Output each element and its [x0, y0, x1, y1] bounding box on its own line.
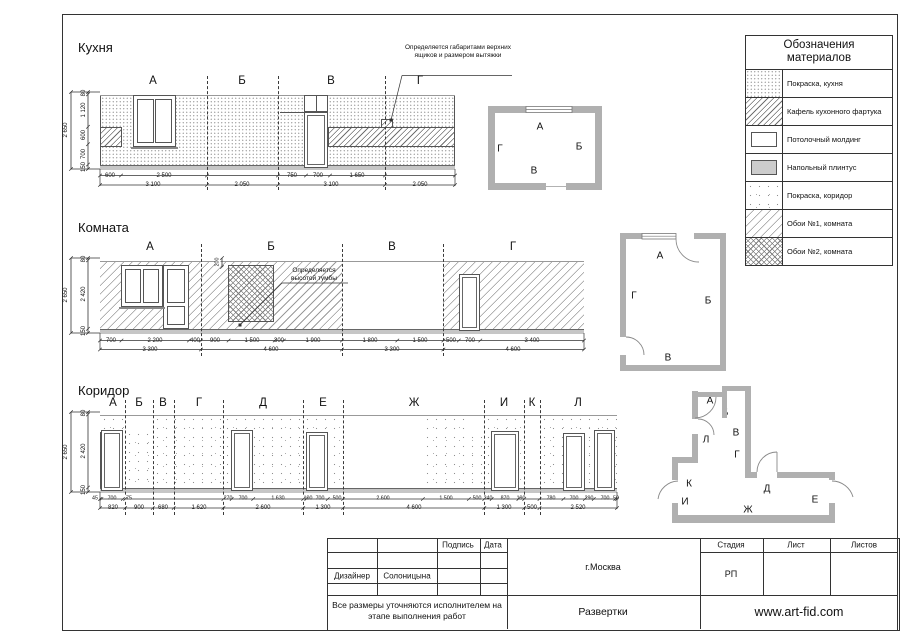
room-door	[459, 274, 480, 331]
legend-row: Покраска, кухня	[746, 69, 892, 97]
kitchen-transom	[304, 95, 328, 112]
section-divider	[342, 244, 343, 356]
titleblock-note: Все размеры уточняются исполнителем на э…	[329, 600, 505, 622]
dim-label: 2 420	[81, 443, 87, 458]
section-divider	[153, 400, 154, 515]
plan-wall-label: А	[537, 122, 544, 133]
room-window-sill	[119, 307, 165, 309]
designer-label: Дизайнер	[334, 572, 370, 581]
dim-label: 1 800	[361, 338, 378, 344]
dim-total-label: 2 650	[63, 444, 69, 459]
dim-label: 4 600	[504, 347, 521, 353]
legend-label: Потолочный молдинг	[783, 126, 865, 153]
dim-label: 700	[105, 338, 117, 344]
section-divider	[443, 244, 444, 356]
section-divider	[278, 76, 279, 190]
legend-label: Напольный плинтус	[783, 154, 860, 181]
dim-label: 780	[546, 496, 557, 501]
legend-label: Покраска, коридор	[783, 182, 856, 209]
plan-wall-label: Г	[497, 144, 502, 155]
dim-label: 150	[81, 326, 87, 336]
dim-label: 500	[472, 496, 483, 501]
kitchen-window-sill	[131, 147, 178, 149]
dim-label: 80	[81, 256, 87, 263]
section-label: Б	[135, 397, 143, 409]
signature-header: Подпись	[442, 541, 474, 550]
legend-label: Кафель кухонного фартука	[783, 98, 885, 125]
dim-label: 500	[526, 505, 538, 511]
sheets-header: Листов	[851, 541, 877, 550]
dim-label: 600	[104, 173, 116, 179]
dim-label: 400	[189, 338, 201, 344]
dim-label: 50	[612, 496, 620, 501]
section-label: Л	[574, 397, 582, 409]
titleblock-line	[327, 595, 898, 596]
dim-label: 700	[569, 496, 580, 501]
legend-row: Кафель кухонного фартука	[746, 97, 892, 125]
balcony-door-glass	[167, 269, 185, 303]
section-label: Б	[238, 75, 246, 87]
stage-value: РП	[725, 569, 737, 579]
titleblock-line	[327, 568, 507, 569]
kitchen-counter-line	[280, 112, 304, 113]
legend-swatch-molding	[746, 126, 783, 153]
section-label: Г	[510, 241, 516, 253]
dim-total-label: 2 650	[63, 122, 69, 137]
section-divider	[540, 400, 541, 515]
section-label: Г	[196, 397, 202, 409]
dim-label: 3 300	[141, 347, 158, 353]
dim-label: 290	[584, 496, 595, 501]
legend-swatch-paint-kitchen	[746, 70, 783, 97]
dim-label: 700	[600, 496, 611, 501]
titleblock-line	[830, 538, 831, 595]
legend-row: Напольный плинтус	[746, 153, 892, 181]
dim-label: 2 050	[233, 182, 250, 188]
sheet-header: Лист	[787, 541, 804, 550]
titleblock-line	[377, 538, 378, 595]
dim-label: 1 120	[81, 102, 87, 117]
corridor-title: Коридор	[78, 383, 129, 398]
dim-label: 270	[223, 496, 234, 501]
section-label: В	[388, 241, 396, 253]
plan-wall-label: Б	[722, 408, 729, 419]
kitchen-window-pane-right	[155, 99, 172, 143]
titleblock-line	[437, 538, 438, 595]
titleblock-line	[763, 538, 764, 595]
dim-label: 2 600	[375, 496, 390, 501]
dim-label: 500	[445, 338, 457, 344]
section-label: Г	[417, 75, 423, 87]
dim-label: 900	[209, 338, 221, 344]
section-label: В	[159, 397, 167, 409]
dim-label: 700	[464, 338, 476, 344]
corridor-paint-vg	[153, 415, 223, 488]
dim-label: 150	[81, 162, 87, 172]
plan-wall-label: Л	[703, 435, 710, 446]
plan-wall-label: Б	[576, 142, 583, 153]
dim-label: 240	[483, 496, 494, 501]
section-label: А	[149, 75, 157, 87]
dim-label: 150	[81, 485, 87, 495]
legend-row: Покраска, коридор	[746, 181, 892, 209]
plan-wall-label: Б	[705, 296, 712, 307]
corridor-paint-b	[125, 430, 153, 488]
dim-label: 1 300	[314, 505, 331, 511]
dim-label: 2 200	[146, 338, 163, 344]
section-label: Б	[267, 241, 275, 253]
section-label: А	[109, 397, 117, 409]
section-divider	[385, 76, 386, 190]
dim-label: 2 520	[569, 505, 586, 511]
dim-label: 3 100	[144, 182, 161, 188]
titleblock-line	[480, 538, 481, 595]
kitchen-hood-notch	[381, 119, 393, 128]
legend-swatch-plinth	[746, 154, 783, 181]
dim-label: 1 620	[190, 505, 207, 511]
dim-label: 100	[303, 496, 314, 501]
dim-label: 80	[81, 410, 87, 417]
drawing-sheet: Кухня А Б В Г Определяется габаритами ве…	[0, 0, 910, 644]
plan-wall-label: Д	[764, 484, 771, 495]
dim-label: 700	[238, 496, 249, 501]
dim-label: 190	[516, 496, 527, 501]
dim-label: 600	[81, 130, 87, 140]
legend-swatch-wallpaper2	[746, 238, 783, 265]
dim-label: 1 500	[243, 338, 260, 344]
dim-label: 300	[273, 338, 285, 344]
room-wallpaper2-panel	[228, 265, 274, 322]
kitchen-annotation: Определяется габаритами верхних ящиков и…	[405, 44, 511, 60]
titleblock-line	[507, 538, 508, 629]
legend-row: Обои №2, комната	[746, 237, 892, 265]
corridor-paint-notch	[469, 415, 484, 430]
plan-wall-label: Е	[812, 495, 819, 506]
balcony-door-panel	[167, 306, 185, 325]
dim-label: 4 600	[262, 347, 279, 353]
kitchen-window	[133, 95, 176, 147]
kitchen-window-pane-left	[137, 99, 154, 143]
dim-label: 1 500	[411, 338, 428, 344]
dim-label: 1 500	[438, 496, 453, 501]
dim-label: 2 050	[411, 182, 428, 188]
dim-label: 3 400	[523, 338, 540, 344]
legend-swatch-wallpaper1	[746, 210, 783, 237]
corridor-door-l2	[594, 430, 615, 491]
dim-label: 2 420	[81, 286, 87, 301]
legend-swatch-tile	[746, 98, 783, 125]
section-label: Д	[259, 397, 267, 409]
dim-label: 870	[500, 496, 511, 501]
plan-wall-label: И	[681, 497, 688, 508]
section-divider	[174, 400, 175, 515]
dim-label: 750	[286, 173, 298, 179]
room-annotation: Определяется высотой тумбы	[282, 267, 346, 283]
section-label: К	[529, 397, 536, 409]
room-window-pane	[143, 269, 159, 303]
corridor-door-e	[306, 432, 328, 491]
dim-label: 700	[81, 149, 87, 159]
room-window-pane	[125, 269, 141, 303]
dim-label: 45	[91, 496, 99, 501]
titleblock-line	[327, 583, 507, 584]
dim-label: 1 650	[348, 173, 365, 179]
room-title: Комната	[78, 220, 129, 235]
plan-wall-label: В	[665, 353, 672, 364]
dim-label: 820	[107, 505, 119, 511]
room-window	[121, 265, 163, 307]
section-label: А	[146, 241, 154, 253]
dim-total-label: 2 650	[63, 287, 69, 302]
kitchen-door	[304, 112, 328, 168]
designer-name: Солоницына	[383, 572, 430, 581]
dim-label: 680	[157, 505, 169, 511]
transom-divider	[316, 96, 317, 112]
kitchen-title: Кухня	[78, 40, 113, 55]
section-divider	[201, 244, 202, 356]
plan-wall-label: А	[657, 251, 664, 262]
dim-label: 500	[332, 496, 343, 501]
plan-wall-label: К	[686, 479, 692, 490]
kitchen-backsplash-right	[328, 127, 455, 147]
section-divider	[343, 400, 344, 515]
dim-label: 75	[125, 496, 133, 501]
legend-swatch-paint-corridor	[746, 182, 783, 209]
dim-label: 2 500	[155, 173, 172, 179]
dim-label: 700	[315, 496, 326, 501]
room-balcony-door	[163, 265, 189, 329]
dim-label: 1 630	[270, 496, 285, 501]
legend-row: Обои №1, комната	[746, 209, 892, 237]
dim-label: 4 600	[405, 505, 422, 511]
dim-label: 700	[312, 173, 324, 179]
city-label: г.Москва	[585, 562, 620, 572]
section-label: И	[500, 397, 508, 409]
section-divider	[207, 76, 208, 190]
corridor-door-i	[491, 431, 519, 491]
corridor-door-l1	[563, 433, 585, 491]
legend-label: Обои №1, комната	[783, 210, 856, 237]
dim-label: 200	[215, 258, 220, 267]
dim-label: 1 900	[304, 338, 321, 344]
titleblock-line	[700, 552, 898, 553]
legend-label: Покраска, кухня	[783, 70, 847, 97]
section-label: Ж	[409, 397, 420, 409]
section-label: Е	[319, 397, 327, 409]
dim-label: 900	[133, 505, 145, 511]
legend-title: Обозначения материалов	[746, 36, 892, 69]
dim-label: 700	[107, 496, 118, 501]
date-header: Дата	[484, 541, 502, 550]
dim-label: 3 300	[383, 347, 400, 353]
plan-wall-label: В	[531, 166, 538, 177]
dim-label: 3 100	[322, 182, 339, 188]
legend-label: Обои №2, комната	[783, 238, 856, 265]
corridor-door-d	[231, 430, 253, 491]
plan-wall-label: Г	[631, 291, 636, 302]
legend-row: Потолочный молдинг	[746, 125, 892, 153]
plan-wall-label: А	[707, 396, 714, 407]
titleblock-line	[327, 552, 507, 553]
dim-label: 2 600	[254, 505, 271, 511]
dim-label: 80	[81, 90, 87, 97]
section-label: В	[327, 75, 335, 87]
plan-wall-label: Г	[734, 450, 739, 461]
stage-header: Стадия	[717, 541, 744, 550]
dim-label: 1 300	[495, 505, 512, 511]
materials-legend: Обозначения материалов Покраска, кухня К…	[745, 35, 893, 266]
document-title: Развертки	[578, 606, 627, 618]
corridor-door-a	[101, 430, 123, 491]
website: www.art-fid.com	[755, 605, 844, 619]
plan-wall-label: В	[733, 428, 740, 439]
plan-wall-label: Ж	[743, 505, 752, 516]
kitchen-backsplash-left	[100, 127, 122, 147]
